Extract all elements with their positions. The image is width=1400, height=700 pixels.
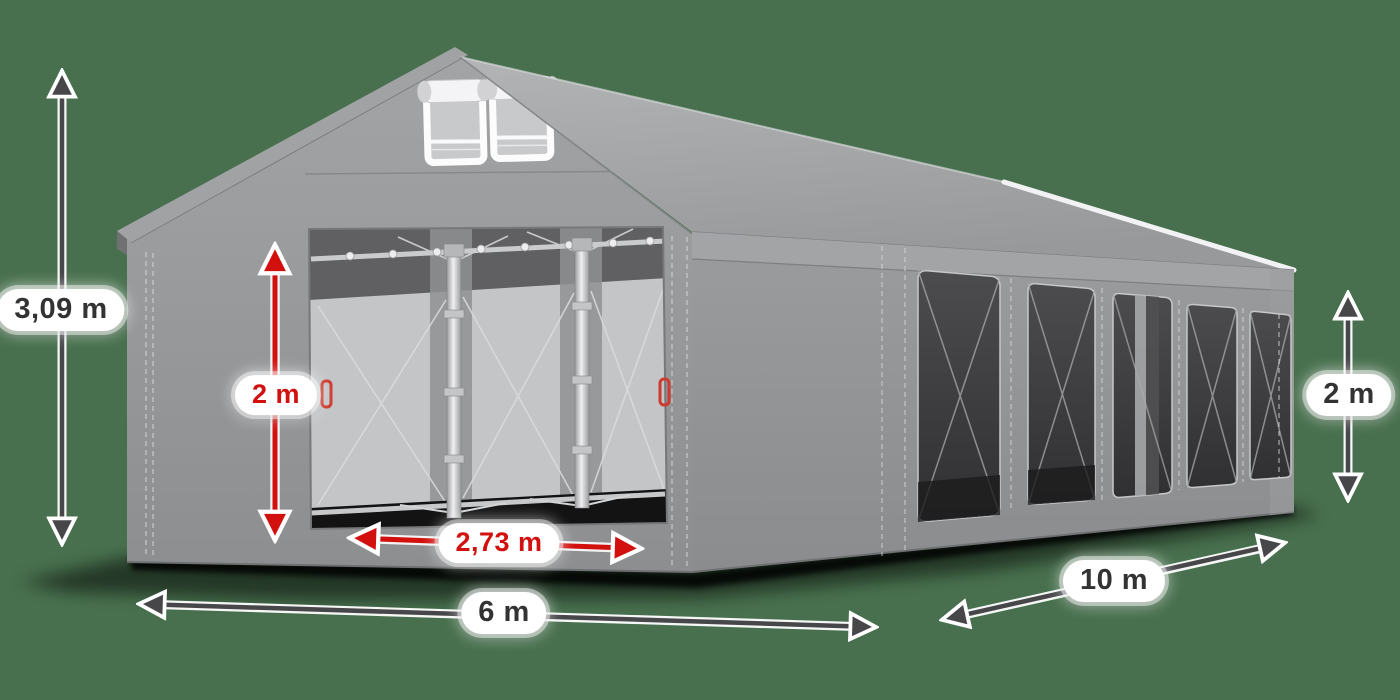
tent-side-wall [692, 232, 1294, 572]
gable-vent-left [417, 79, 493, 163]
door-width-label: 2,73 m [438, 523, 559, 563]
side-window [1113, 293, 1172, 497]
interior-pole [572, 238, 592, 508]
side-length-label: 10 m [1063, 560, 1165, 602]
side-window [918, 270, 1000, 522]
door-height-label: 2 m [235, 375, 317, 415]
interior-pole [444, 244, 464, 518]
side-window [1187, 304, 1237, 488]
side-window [1250, 311, 1291, 480]
side-wall-height-label: 2 m [1306, 374, 1391, 416]
front-width-label: 6 m [461, 592, 546, 634]
total-height-label: 3,09 m [0, 289, 125, 331]
side-window [1028, 283, 1095, 505]
tent-dimension-diagram: 3,09 m 2 m 2,73 m 6 m 10 m 2 m [0, 0, 1400, 700]
door-interior [305, 222, 675, 534]
tent-illustration [0, 0, 1400, 700]
